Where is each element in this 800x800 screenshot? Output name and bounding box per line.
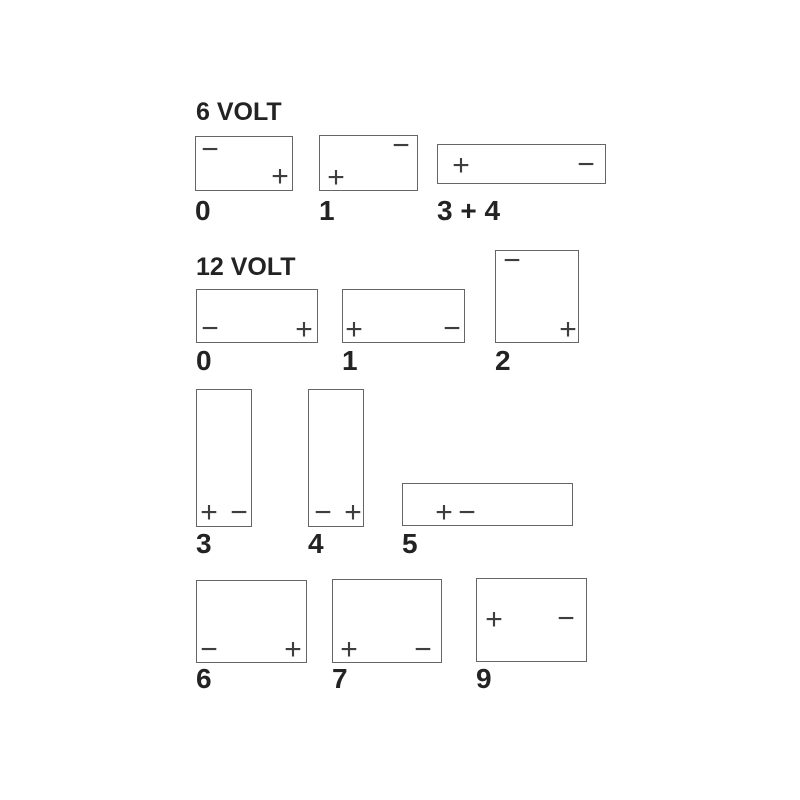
section-title-6-volt: 6 VOLT bbox=[196, 100, 282, 125]
minus-terminal-icon: − bbox=[557, 604, 575, 634]
battery-layout-diagram: 6 VOLT−+0−+1+−3 + 412 VOLT−+0+−1−+2+−3−+… bbox=[0, 0, 800, 800]
plus-terminal-icon: + bbox=[295, 315, 313, 345]
battery-box-12v-9: +− bbox=[476, 578, 587, 662]
minus-terminal-icon: − bbox=[201, 314, 219, 344]
plus-terminal-icon: + bbox=[559, 315, 577, 345]
battery-label-12v-7: 7 bbox=[332, 665, 348, 693]
plus-terminal-icon: + bbox=[284, 635, 302, 665]
minus-terminal-icon: − bbox=[201, 135, 219, 165]
battery-box-12v-7: +− bbox=[332, 579, 442, 663]
battery-label-12v-6: 6 bbox=[196, 665, 212, 693]
minus-terminal-icon: − bbox=[443, 314, 461, 344]
plus-terminal-icon: + bbox=[485, 605, 503, 635]
battery-label-6v-1: 1 bbox=[319, 197, 335, 225]
battery-label-12v-3: 3 bbox=[196, 530, 212, 558]
battery-box-6v-0: −+ bbox=[195, 136, 293, 191]
minus-terminal-icon: − bbox=[577, 150, 595, 180]
section-title-12-volt: 12 VOLT bbox=[196, 255, 296, 280]
plus-terminal-icon: + bbox=[344, 498, 362, 528]
battery-label-12v-1: 1 bbox=[342, 347, 358, 375]
battery-label-6v-0: 0 bbox=[195, 197, 211, 225]
minus-terminal-icon: − bbox=[503, 246, 521, 276]
battery-label-12v-2: 2 bbox=[495, 347, 511, 375]
battery-label-12v-4: 4 bbox=[308, 530, 324, 558]
battery-box-12v-6: −+ bbox=[196, 580, 307, 663]
battery-label-12v-9: 9 bbox=[476, 665, 492, 693]
battery-label-6v-3-4: 3 + 4 bbox=[437, 197, 500, 225]
battery-box-12v-4: −+ bbox=[308, 389, 364, 527]
minus-terminal-icon: − bbox=[414, 635, 432, 665]
plus-terminal-icon: + bbox=[345, 315, 363, 345]
minus-terminal-icon: − bbox=[230, 498, 248, 528]
battery-box-6v-3-4: +− bbox=[437, 144, 606, 184]
plus-terminal-icon: + bbox=[271, 162, 289, 192]
battery-label-12v-5: 5 bbox=[402, 530, 418, 558]
plus-terminal-icon: + bbox=[200, 498, 218, 528]
plus-terminal-icon: + bbox=[327, 163, 345, 193]
minus-terminal-icon: − bbox=[458, 498, 476, 528]
battery-box-6v-1: −+ bbox=[319, 135, 418, 191]
battery-label-12v-0: 0 bbox=[196, 347, 212, 375]
minus-terminal-icon: − bbox=[392, 131, 410, 161]
plus-terminal-icon: + bbox=[340, 635, 358, 665]
battery-box-12v-1: +− bbox=[342, 289, 465, 343]
minus-terminal-icon: − bbox=[200, 635, 218, 665]
minus-terminal-icon: − bbox=[314, 498, 332, 528]
battery-box-12v-3: +− bbox=[196, 389, 252, 527]
battery-box-12v-5: +− bbox=[402, 483, 573, 526]
battery-box-12v-0: −+ bbox=[196, 289, 318, 343]
plus-terminal-icon: + bbox=[452, 151, 470, 181]
battery-box-12v-2: −+ bbox=[495, 250, 579, 343]
plus-terminal-icon: + bbox=[435, 498, 453, 528]
